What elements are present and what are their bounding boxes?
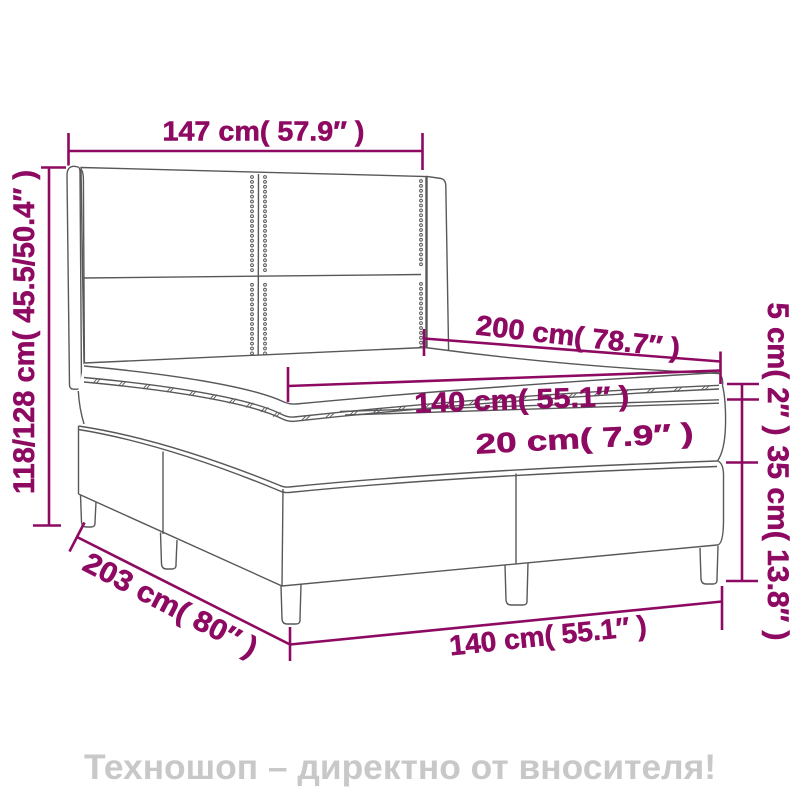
svg-text:Техношоп – директно от вносите: Техношоп – директно от вносителя! [84, 748, 716, 787]
svg-text:118/128 cm( 45.5/50.4″ ): 118/128 cm( 45.5/50.4″ ) [8, 170, 41, 494]
svg-text:35 cm( 13.8″ ): 35 cm( 13.8″ ) [761, 446, 794, 641]
svg-text:5 cm( 2″ ): 5 cm( 2″ ) [761, 303, 794, 436]
svg-text:147 cm( 57.9″ ): 147 cm( 57.9″ ) [163, 116, 365, 147]
